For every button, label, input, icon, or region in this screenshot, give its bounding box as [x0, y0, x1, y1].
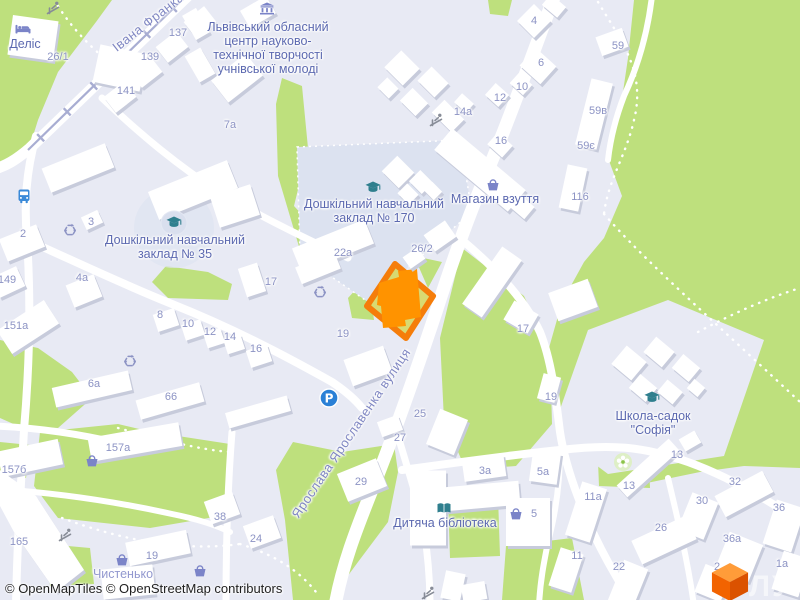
house-number: 6a — [88, 378, 100, 390]
house-number: 12 — [204, 326, 216, 338]
house-number: 14 — [224, 331, 236, 343]
house-number: 16 — [250, 343, 262, 355]
recycling-icon — [313, 285, 328, 299]
kindergarten-35-icon — [162, 212, 187, 235]
recycling-icon — [123, 354, 138, 368]
lun-cube-logo[interactable] — [711, 562, 749, 600]
house-number: 22 — [613, 561, 625, 573]
poi-label-children-library: Дитяча бібліотека — [393, 516, 496, 530]
house-number: 137 — [169, 27, 187, 39]
house-number: 19 — [545, 391, 557, 403]
house-number: 151a — [4, 320, 28, 332]
house-number: 59 — [612, 40, 624, 52]
house-number: 26 — [655, 522, 667, 534]
house-number: 16 — [495, 135, 507, 147]
house-number: 17 — [517, 323, 529, 335]
map-canvas[interactable]: P26/11371391417a46101214a165959в59є11623… — [0, 0, 800, 600]
parking-icon: P — [319, 388, 339, 408]
house-number: 139 — [141, 51, 159, 63]
house-number: 29 — [355, 476, 367, 488]
library-book-icon — [436, 502, 452, 515]
shop-basket-icon — [509, 507, 524, 521]
playground-icon — [420, 586, 436, 600]
house-number: 13 — [671, 449, 683, 461]
shop-basket-icon — [85, 454, 100, 468]
playground-icon — [428, 113, 444, 128]
map-labels-layer: P26/11371391417a46101214a165959в59є11623… — [0, 0, 800, 600]
house-number: 10 — [516, 81, 528, 93]
house-number: 13 — [623, 480, 635, 492]
house-number: 10 — [182, 318, 194, 330]
house-number: 59є — [577, 140, 595, 152]
florist-icon — [614, 453, 633, 472]
poi-label-hotel-delis: Деліс — [9, 37, 40, 51]
shop-basket-icon — [115, 553, 130, 567]
house-number: 30 — [696, 495, 708, 507]
attribution[interactable]: © OpenMapTiles © OpenStreetMap contribut… — [5, 581, 282, 596]
house-number: 5 — [531, 508, 537, 520]
poi-label-chystenko-shop: Чистенько — [93, 567, 153, 581]
house-number: 165 — [10, 536, 28, 548]
house-number: 26/2 — [411, 243, 432, 255]
house-number: 25 — [414, 408, 426, 420]
house-number: 7a — [224, 119, 236, 131]
house-number: 14a — [454, 106, 472, 118]
house-number: 27 — [394, 432, 406, 444]
kindergarten-170-icon — [365, 181, 382, 196]
house-number: 19 — [337, 328, 349, 340]
recycling-icon — [63, 223, 78, 237]
school-sofia-icon — [644, 391, 661, 406]
house-number: 4a — [76, 272, 88, 284]
house-number: 36a — [723, 533, 741, 545]
poi-label-shoe-shop: Магазин взуття — [451, 192, 539, 206]
house-number: 11 — [571, 550, 582, 562]
house-number: 149 — [0, 274, 16, 286]
playground-icon — [45, 1, 61, 16]
hotel-bed-icon — [15, 23, 32, 36]
house-number: 157a — [106, 442, 130, 454]
lun-logo-text[interactable]: ЛУН — [749, 570, 800, 600]
house-number: 24 — [250, 533, 262, 545]
house-number: 4 — [531, 15, 537, 27]
house-number: 6 — [538, 57, 544, 69]
house-number: 5a — [537, 466, 549, 478]
house-number: 3 — [88, 216, 94, 228]
shop-basket-icon — [486, 178, 501, 192]
house-number: 12 — [494, 92, 506, 104]
playground-icon — [57, 528, 73, 543]
house-number: 66 — [165, 391, 177, 403]
house-number: 17 — [265, 276, 277, 288]
house-number: 3a — [479, 465, 491, 477]
house-number: 141 — [117, 85, 135, 97]
svg-text:P: P — [325, 391, 334, 405]
bus-stop-icon — [17, 189, 31, 204]
house-number: 59в — [589, 105, 607, 117]
house-number: 11a — [584, 491, 602, 503]
poi-label-school-sofia: Школа-садок"Софія" — [615, 409, 690, 437]
house-number: 38 — [214, 511, 226, 523]
shop-basket-icon — [193, 564, 208, 578]
house-number: 8 — [157, 309, 163, 321]
poi-label-kindergarten-35: Дошкільний навчальнийзаклад № 35 — [105, 233, 245, 261]
house-number: 1a — [776, 558, 788, 570]
poi-label-kindergarten-170: Дошкільний навчальнийзаклад № 170 — [304, 197, 444, 225]
house-number: 2 — [20, 228, 26, 240]
house-number: 157б — [2, 464, 27, 476]
house-number: 36 — [773, 502, 785, 514]
house-number: 22a — [334, 247, 352, 259]
house-number: 32 — [729, 476, 741, 488]
house-number: 26/1 — [47, 51, 68, 63]
poi-label-lviv-center: Львівський обласнийцентр науково-технічн… — [207, 20, 328, 76]
house-number: 116 — [571, 191, 589, 203]
house-number: 19 — [146, 550, 158, 562]
museum-icon — [259, 2, 275, 16]
